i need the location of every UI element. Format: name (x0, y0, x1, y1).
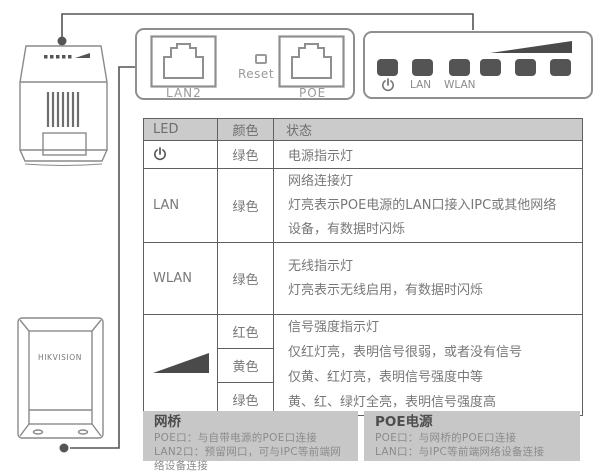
signal-status-line: 信号强度指示灯 (288, 315, 582, 340)
lan-status-line: 网络连接灯 (288, 170, 582, 194)
power-led (377, 59, 398, 76)
lan2-port-icon (150, 35, 217, 88)
callout-dot-bottom (60, 444, 69, 453)
poe-power-line: POE口：与网桥的POE口连接 (375, 431, 570, 445)
signal-strength-icon (153, 353, 209, 373)
signal-color-red: 红色 (218, 315, 274, 349)
header-status: 状态 (274, 119, 583, 141)
signal-status-line: 仅黄、红灯亮，表明信号强度中等 (288, 365, 582, 390)
wlan-color: 绿色 (218, 243, 274, 315)
device-rear-vents (48, 92, 78, 127)
bridge-line: LAN2口：预留网口，可与IPC等前端网络设备连接 (154, 445, 348, 473)
poe-power-info-box: POE电源 POE口：与网桥的POE口连接 LAN口：与IPC等前端网络设备连接 (364, 411, 580, 461)
signal-led-red (480, 59, 501, 76)
callout-dot-top (58, 37, 67, 46)
poe-power-line: LAN口：与IPC等前端网络设备连接 (375, 445, 570, 459)
lan-label: LAN (144, 169, 218, 243)
lan-led (412, 59, 433, 76)
table-row-power: 绿色 电源指示灯 (144, 141, 583, 169)
wlan-led (449, 59, 470, 76)
bridge-title: 网桥 (154, 414, 348, 431)
lan-status-line: 灯亮表示POE电源的LAN口接入IPC或其他网络 (288, 194, 582, 218)
lan-color: 绿色 (218, 169, 274, 243)
lan-status: 网络连接灯 灯亮表示POE电源的LAN口接入IPC或其他网络 设备，有数据时闪烁 (274, 169, 583, 243)
table-row-lan: LAN 绿色 网络连接灯 灯亮表示POE电源的LAN口接入IPC或其他网络 设备… (144, 169, 583, 243)
power-icon (381, 78, 395, 92)
lan-status-line: 设备，有数据时闪烁 (288, 218, 582, 242)
wlan-status-line: 无线指示灯 (288, 255, 582, 279)
port-panel: LAN2 Reset POE (135, 28, 355, 100)
signal-strength-icon (490, 41, 572, 53)
power-icon (153, 147, 167, 161)
wlan-status-line: 灯亮表示无线启用，有数据时闪烁 (288, 279, 582, 303)
header-led: LED (144, 119, 218, 141)
poe-port-label: POE (299, 86, 326, 100)
page: HIKVISION LAN2 Reset POE LAN WLAN (0, 0, 600, 474)
brand-label: HIKVISION (38, 353, 82, 362)
table-row-wlan: WLAN 绿色 无线指示灯 灯亮表示无线启用，有数据时闪烁 (144, 243, 583, 315)
led-status-table: LED 颜色 状态 绿色 电源指示灯 LAN 绿色 网络连接灯 (143, 118, 583, 416)
reset-label: Reset (238, 67, 274, 81)
power-status: 电源指示灯 (274, 141, 583, 169)
wlan-status: 无线指示灯 灯亮表示无线启用，有数据时闪烁 (274, 243, 583, 315)
header-color: 颜色 (218, 119, 274, 141)
wlan-label: WLAN (144, 243, 218, 315)
bridge-line: POE口：与自带电源的POE口连接 (154, 431, 348, 445)
device-rear-led-strip (44, 53, 90, 59)
poe-port-icon (278, 35, 345, 88)
signal-status: 信号强度指示灯 仅红灯亮，表明信号很弱，或者没有信号 仅黄、红灯亮，表明信号强度… (274, 315, 583, 416)
power-color: 绿色 (218, 141, 274, 169)
signal-status-line: 仅红灯亮，表明信号很弱，或者没有信号 (288, 340, 582, 365)
led-panel: LAN WLAN (363, 31, 593, 99)
lan2-port-label: LAN2 (166, 86, 202, 100)
poe-power-title: POE电源 (375, 414, 570, 431)
signal-led-yellow (515, 59, 536, 76)
table-row-signal-red: 红色 信号强度指示灯 仅红灯亮，表明信号很弱，或者没有信号 仅黄、红灯亮，表明信… (144, 315, 583, 349)
signal-color-yellow: 黄色 (218, 349, 274, 383)
reset-button[interactable] (255, 54, 267, 64)
bridge-info-box: 网桥 POE口：与自带电源的POE口连接 LAN2口：预留网口，可与IPC等前端… (143, 411, 358, 461)
lan-led-label: LAN (410, 79, 431, 91)
device-front-drawing (18, 318, 103, 438)
table-header-row: LED 颜色 状态 (144, 119, 583, 141)
wlan-led-label: WLAN (444, 79, 476, 91)
signal-led-green (550, 59, 571, 76)
signal-icon-cell (144, 315, 218, 416)
